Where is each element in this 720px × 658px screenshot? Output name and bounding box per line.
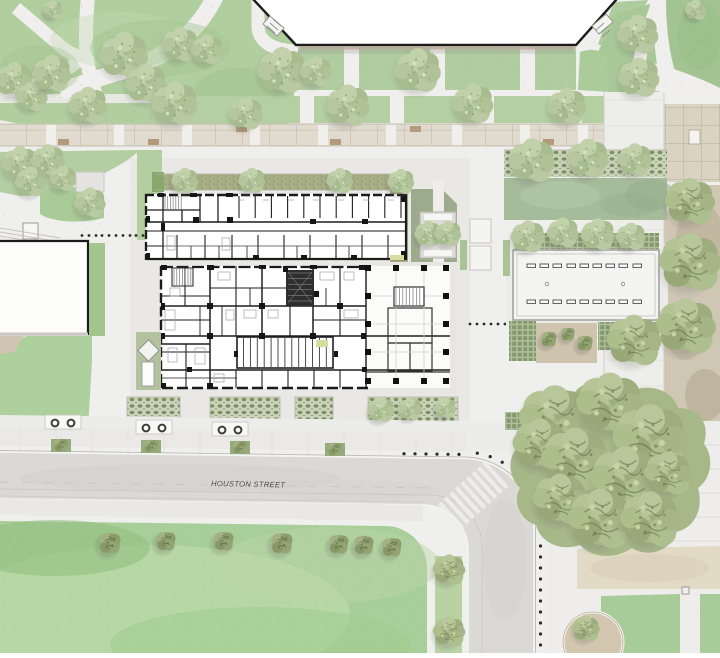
svg-text:HOUSTON STREET: HOUSTON STREET: [211, 479, 286, 489]
